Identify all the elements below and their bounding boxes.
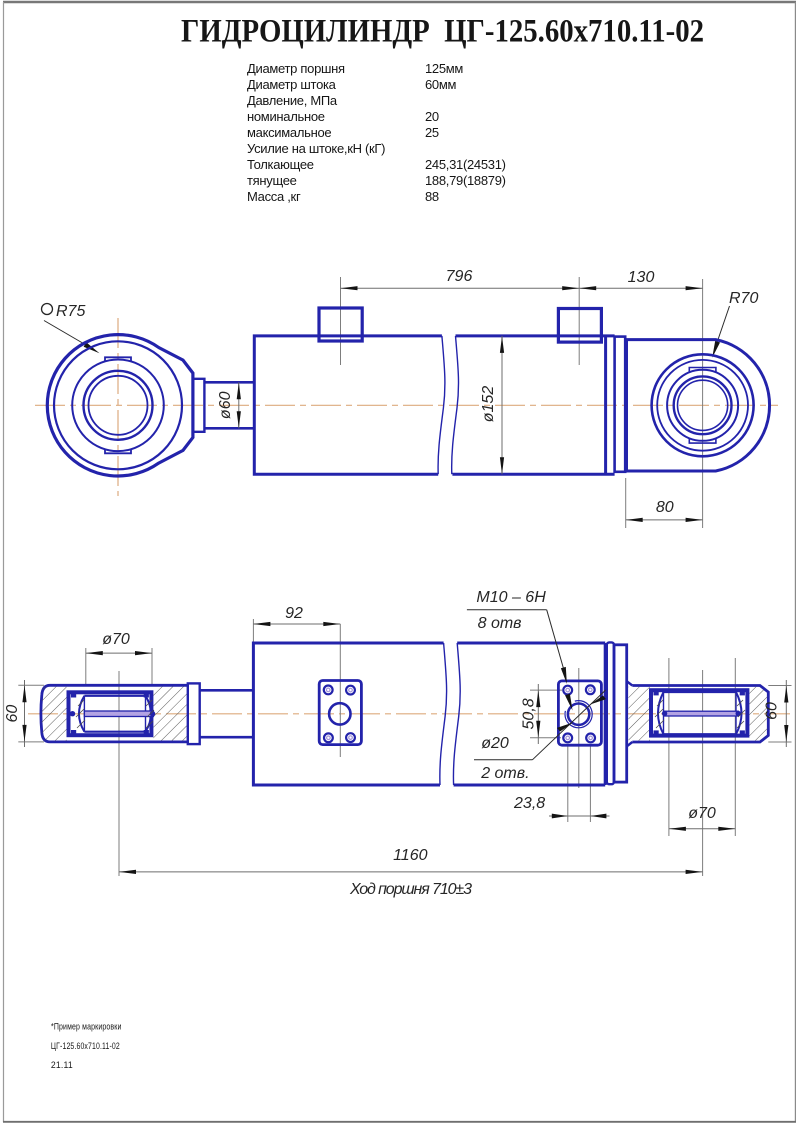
svg-text:Толкающее: Толкающее: [247, 157, 314, 172]
svg-text:Усилие на штоке,кН (кГ): Усилие на штоке,кН (кГ): [247, 141, 385, 156]
svg-text:Масса ,кг: Масса ,кг: [247, 189, 301, 204]
svg-text:ЦГ-125.60х710.11-02: ЦГ-125.60х710.11-02: [51, 1041, 120, 1052]
svg-text:R75: R75: [56, 303, 85, 320]
svg-text:60: 60: [4, 705, 21, 723]
svg-text:Ход поршня 710±3: Ход поршня 710±3: [349, 881, 472, 898]
svg-text:796: 796: [446, 268, 473, 285]
svg-text:Давление, МПа: Давление, МПа: [247, 93, 338, 108]
svg-text:номинальное: номинальное: [247, 109, 325, 124]
svg-text:125мм: 125мм: [425, 61, 463, 76]
svg-text:20: 20: [425, 109, 439, 124]
svg-text:максимальное: максимальное: [247, 125, 331, 140]
svg-text:тянущее: тянущее: [247, 173, 297, 188]
svg-text:188,79(18879): 188,79(18879): [425, 173, 506, 188]
svg-text:ø60: ø60: [217, 391, 234, 419]
svg-text:R70: R70: [729, 290, 758, 307]
svg-text:*Пример маркировки: *Пример маркировки: [51, 1022, 122, 1033]
svg-text:25: 25: [425, 125, 439, 140]
svg-text:2 отв.: 2 отв.: [480, 765, 529, 782]
svg-text:Диаметр штока: Диаметр штока: [247, 77, 337, 92]
svg-text:ø20: ø20: [481, 735, 509, 752]
svg-text:50,8: 50,8: [521, 698, 538, 729]
svg-text:130: 130: [628, 269, 655, 286]
svg-text:ø70: ø70: [102, 631, 130, 648]
svg-text:M10 – 6H: M10 – 6H: [476, 589, 546, 606]
svg-text:88: 88: [425, 189, 439, 204]
svg-text:8 отв: 8 отв: [478, 615, 522, 632]
svg-text:80: 80: [656, 499, 674, 516]
svg-text:23,8: 23,8: [513, 795, 545, 812]
svg-text:245,31(24531): 245,31(24531): [425, 157, 506, 172]
svg-text:21.11: 21.11: [51, 1060, 73, 1071]
svg-text:Диаметр поршня: Диаметр поршня: [247, 61, 345, 76]
svg-text:1160: 1160: [393, 847, 428, 864]
svg-text:ø70: ø70: [688, 805, 716, 822]
svg-text:60: 60: [764, 702, 781, 720]
svg-text:ø152: ø152: [480, 386, 497, 423]
svg-text:92: 92: [285, 605, 303, 622]
svg-text:ГИДРОЦИЛИНДР ЦГ-125.60х710.11: ГИДРОЦИЛИНДР ЦГ-125.60х710.11-02: [181, 14, 704, 50]
svg-text:60мм: 60мм: [425, 77, 456, 92]
